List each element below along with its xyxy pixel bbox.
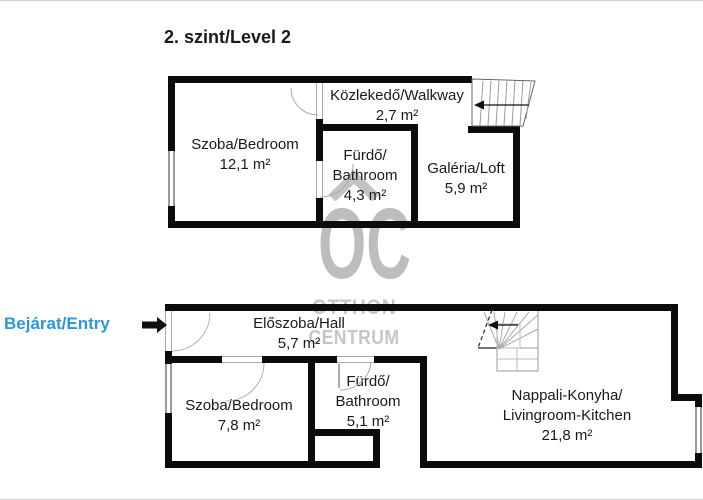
room-name: Fürdő/ [318, 372, 418, 392]
wall-segment [420, 461, 702, 468]
wall-segment [468, 126, 520, 133]
room-label-loft: Galéria/Loft 5,9 m² [410, 159, 522, 199]
room-area: 4,3 m² [317, 186, 413, 206]
door-leaf [222, 356, 262, 363]
wall-segment [168, 76, 472, 83]
room-area: 12,1 m² [160, 155, 330, 175]
room-name: Galéria/Loft [410, 159, 522, 179]
room-label-walkway: Közlekedő/Walkway 2,7 m² [322, 86, 472, 126]
watermark-oc: OC [318, 206, 390, 282]
room-label-lower-bathroom: Fürdő/ Bathroom 5,1 m² [318, 372, 418, 432]
door-leaf [337, 356, 374, 363]
room-area: 5,1 m² [318, 412, 418, 432]
room-name: Szoba/Bedroom [163, 396, 315, 416]
room-area: 7,8 m² [163, 416, 315, 436]
wall-segment [695, 394, 702, 407]
stair-direction-arrow-icon [488, 321, 518, 330]
room-area: 21,8 m² [468, 426, 666, 446]
room-name: Livingroom-Kitchen [468, 406, 666, 426]
entry-arrow-icon [142, 317, 167, 333]
room-label-living-kitchen: Nappali-Konyha/ Livingroom-Kitchen 21,8 … [468, 386, 666, 446]
room-area: 2,7 m² [322, 106, 472, 126]
page-title: 2. szint/Level 2 [164, 27, 291, 48]
floorplan-canvas: OC OTTHON CENTRUM [0, 0, 703, 500]
wall-segment [262, 356, 337, 363]
room-name: Bathroom [318, 392, 418, 412]
room-area: 5,9 m² [410, 179, 522, 199]
wall-segment [168, 221, 520, 228]
room-name: Nappali-Konyha/ [468, 386, 666, 406]
room-label-upper-bedroom: Szoba/Bedroom 12,1 m² [160, 135, 330, 175]
lower-staircase [478, 310, 538, 371]
upper-staircase [472, 79, 535, 126]
window [695, 407, 702, 453]
room-label-lower-bedroom: Szoba/Bedroom 7,8 m² [163, 396, 315, 436]
stair-direction-arrow-icon [474, 101, 529, 110]
entry-label: Bejárat/Entry [4, 314, 110, 334]
door-leaf [165, 311, 172, 351]
room-label-upper-bathroom: Fürdő/ Bathroom 4,3 m² [317, 146, 413, 206]
room-name: Előszoba/Hall [228, 314, 370, 334]
wall-segment [671, 304, 678, 401]
wall-segment [165, 356, 222, 363]
wall-segment [165, 461, 380, 468]
room-name: Közlekedő/Walkway [322, 86, 472, 106]
wall-segment [695, 453, 702, 468]
wall-segment [165, 304, 172, 311]
room-name: Szoba/Bedroom [160, 135, 330, 155]
room-area: 5,7 m² [228, 334, 370, 354]
room-name: Fürdő/ [317, 146, 413, 166]
room-name: Bathroom [317, 166, 413, 186]
room-label-hall: Előszoba/Hall 5,7 m² [228, 314, 370, 354]
wall-segment [165, 304, 678, 311]
wall-segment [420, 356, 427, 468]
